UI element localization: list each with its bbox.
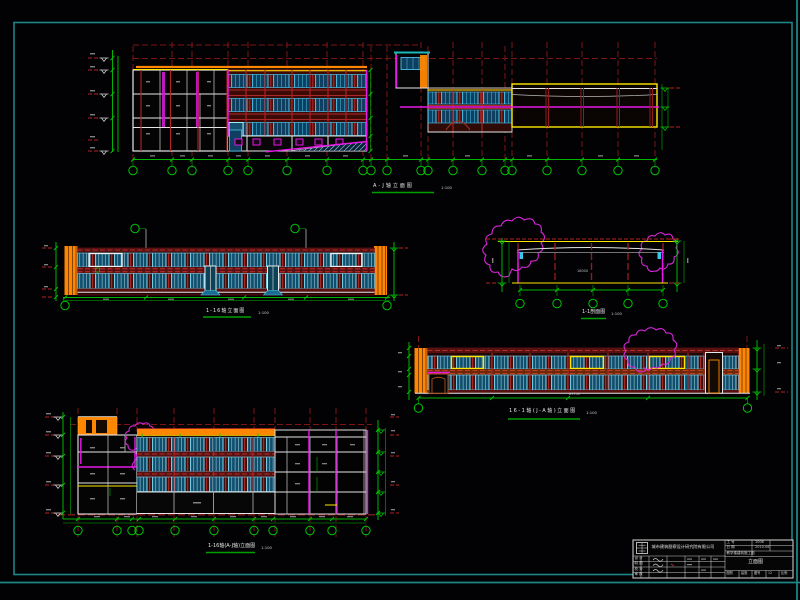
title-block-row-draft: 制 图 [635,562,643,566]
title-block-row-review: 审 核 [635,573,643,577]
tree-cloud-left [483,217,545,277]
grid-bubbles-top [129,155,659,175]
title-block-date-label: 日 期 [727,546,735,550]
drawing-title-mid-left: 1-16轴立面图 [206,309,245,314]
mid-right-elevation [398,328,788,419]
facade-body [415,348,750,393]
title-block-job-value: 1006 [755,541,764,545]
title-block-date-value: 2010.06 [755,546,769,550]
baseline-bubbles [414,396,751,412]
end-pier-left [415,348,428,393]
cad-sheet: A-J轴立面图 1:100 1-16轴立面图 1:100 1-1剖面图 1:10… [0,0,800,600]
dim-stack-left [88,50,118,154]
title-block-drawing-name: 立面图 [748,560,763,565]
title-block-company: 城市建筑勘察设计研究院有限公司 [652,545,715,549]
stair-tower [394,52,430,88]
dim-stack-left [45,412,71,519]
dim-stack-right [669,238,688,292]
dim-stack-right [390,242,409,301]
roof-block [78,417,117,436]
top-elevation [88,42,680,193]
dim-stack-right [376,414,399,520]
title-block-scale-label: 比例 [781,572,787,575]
title-block-cat: 建施 [741,572,747,575]
end-pier-left [65,246,78,295]
dim-stack-right [753,340,789,400]
title-block-project: 教学楼建筑施工图 [727,552,755,556]
facade-body [78,248,375,295]
title-block-no-label: 图号 [754,572,760,575]
end-pier-right [739,348,750,393]
dim-stack-left [42,242,58,301]
scale-label-mid-right: 1:100 [586,411,597,415]
drawing-title-section: 1-1剖面图 [582,310,605,315]
cad-drawing-canvas [0,0,800,600]
wing-block [428,88,512,132]
mid-left-elevation [42,224,408,317]
end-pier-right [374,246,387,295]
bottom-left-elevation [45,408,399,553]
dim-right-total: 83740 [569,393,580,397]
scale-label-mid-left: 1:100 [258,311,269,315]
title-block-job-label: 工 号 [727,541,735,545]
dim-stack-left [398,342,411,400]
window-block-right [228,68,373,153]
baseline-bubbles [63,516,370,535]
scale-label-section: 1:100 [611,312,622,316]
title-block-cat-label: 图别 [727,572,733,575]
grid-block-right [275,430,368,514]
title-block-row-check: 校 对 [635,568,643,572]
scale-label-bottom-left: 1:100 [261,546,272,550]
section-block-left [133,70,228,152]
title-block-no: 12 [768,572,772,575]
window-block-middle [137,429,275,514]
drawing-title-mid-right: 16-1轴(J-A轴)立面图 [509,409,577,414]
baseline-bubbles [516,285,667,308]
scale-label-top: 1:100 [441,186,452,190]
drawing-title-bottom-left: 1-16轴(A-J轴)立面图 [208,544,255,549]
section-1-1 [483,217,689,318]
title-block-row-design: 设 计 [635,557,643,561]
drawing-title-top: A-J轴立面图 [373,184,414,189]
dim-section-width: 18000 [577,270,588,274]
